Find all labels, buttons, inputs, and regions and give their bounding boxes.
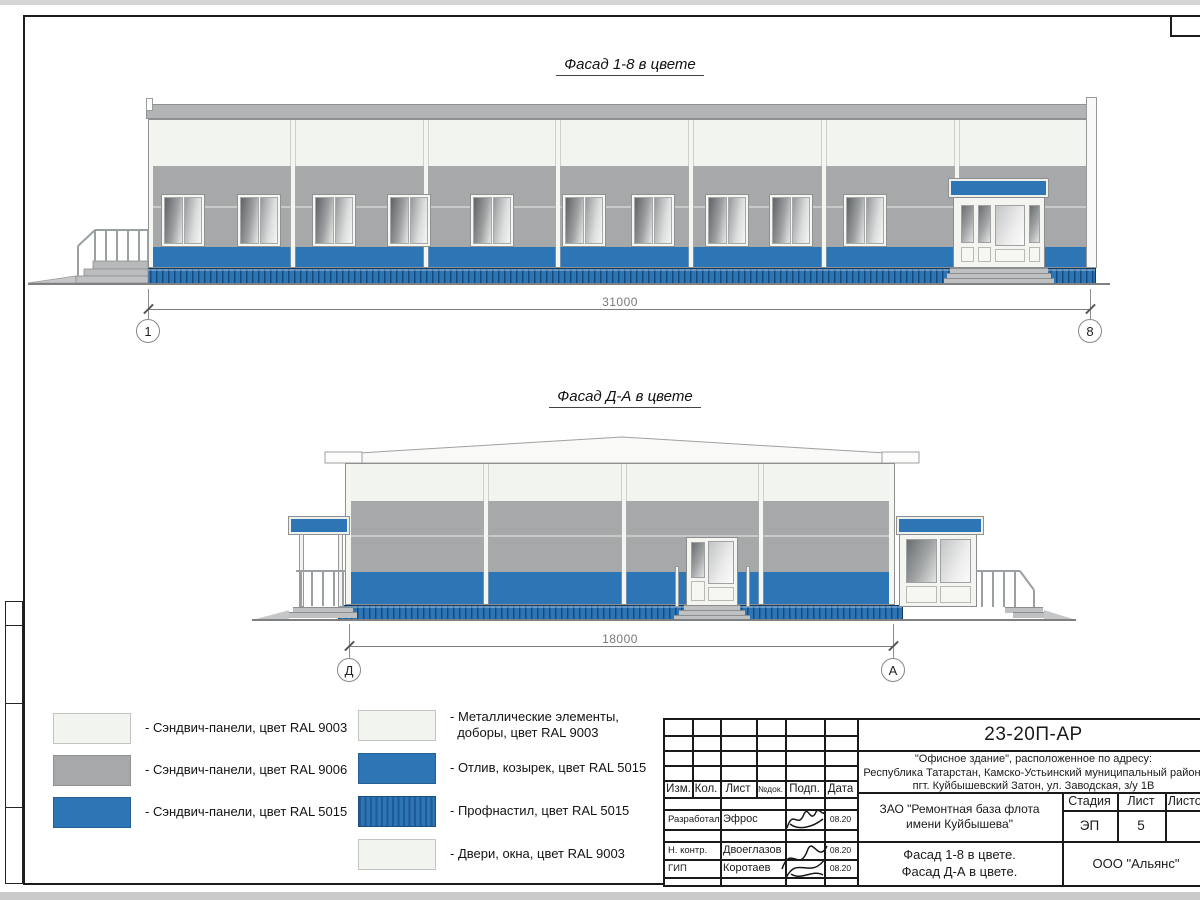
facade1-title: Фасад 1-8 в цвете (480, 56, 780, 73)
titleblock-grid-line (1117, 792, 1119, 841)
facade1-stairs-railing (28, 222, 150, 284)
facade-window (470, 194, 514, 247)
door-glass-pane (1029, 205, 1040, 243)
sheet-number: 5 (1117, 810, 1165, 841)
drawing-title-line: Фасад Д-А в цвете. (902, 863, 1018, 880)
role-cell: ГИП (668, 859, 720, 877)
porch-left-canopy (289, 517, 349, 534)
legend-swatch-ral9003 (53, 713, 131, 744)
door-kick-panel (1029, 247, 1040, 262)
legend-item: - Отлив, козырек, цвет RAL 5015 (358, 752, 646, 784)
legend-swatch-ral5015 (53, 797, 131, 828)
porch-left-railing (294, 566, 350, 608)
titleblock-header-1: Кол. (692, 780, 720, 797)
page-edge-top (0, 0, 1200, 5)
legend-label: - Сэндвич-панели, цвет RAL 9003 (145, 720, 347, 736)
frame-corner-box (1170, 15, 1200, 37)
facade-mullion (622, 464, 626, 604)
door-handrail-post (746, 566, 750, 607)
name-cell: Эфрос (723, 809, 785, 829)
window-pane-right (185, 198, 201, 243)
window-pane-left (474, 198, 491, 243)
facade-window (312, 194, 356, 247)
door-kick-panel (978, 247, 991, 262)
facade-window (631, 194, 675, 247)
margin-box-3 (5, 703, 23, 808)
titleblock-header-5: Дата (824, 780, 857, 797)
legend-label: - Сэндвич-панели, цвет RAL 5015 (145, 804, 347, 820)
door-handrail-post (675, 566, 679, 607)
facade1-blue-band (149, 247, 1089, 268)
sheet-label: Лист (1117, 792, 1165, 810)
role-cell: Н. контр. (668, 841, 720, 859)
porch-kick-panel (906, 586, 937, 603)
facade1-parapet-tick (146, 98, 153, 111)
titleblock-grid-line (665, 765, 857, 767)
legend-swatch-ral9006 (53, 755, 131, 786)
legend-item: - Сэндвич-панели, цвет RAL 9003 (53, 712, 347, 744)
titleblock-grid-line (665, 877, 857, 879)
window-pane-right (494, 198, 510, 243)
legend-swatch-ral9003 (358, 839, 436, 870)
porch-step (289, 612, 357, 618)
door-kick-panel (691, 581, 705, 601)
project-address: "Офисное здание", расположенное по адрес… (857, 751, 1200, 792)
facade-window (387, 194, 431, 247)
porch-window (906, 539, 937, 583)
window-pane-right (729, 198, 745, 243)
page-edge-bottom (0, 892, 1200, 900)
window-pane-left (241, 198, 258, 243)
facade1-ground-line (28, 283, 1110, 285)
titleblock-header-2: Лист (720, 780, 756, 797)
facade2-roof (315, 430, 965, 466)
facade2-extension-line-left (349, 624, 350, 658)
door-kick-panel (995, 249, 1025, 262)
titleblock-grid-line (1165, 792, 1167, 841)
window-pane-left (773, 198, 790, 243)
facade1-corner-pilaster (1086, 97, 1097, 268)
company-name: ООО "Альянс" (1062, 841, 1200, 885)
legend-label: - Сэндвич-панели, цвет RAL 9006 (145, 762, 347, 778)
date-cell: 08.20 (824, 859, 857, 877)
legend-column-left: - Сэндвич-панели, цвет RAL 9003- Сэндвич… (53, 712, 353, 842)
client-name: ЗАО "Ремонтная база флота имени Куйбышев… (857, 792, 1062, 841)
facade2-extension-line-right (893, 624, 894, 658)
legend-column-right: - Металлические элементы, доборы, цвет R… (358, 709, 663, 874)
legend-label: - Профнастил, цвет RAL 5015 (450, 803, 629, 819)
facade1-extension-line-right (1090, 289, 1091, 319)
facade-mullion (822, 120, 826, 267)
facade1-entrance-canopy (949, 179, 1048, 197)
legend-item: - Сэндвич-панели, цвет RAL 9006 (53, 754, 347, 786)
facade2-dimension-line (349, 646, 894, 647)
address-line: "Офисное здание", расположенное по адрес… (857, 753, 1200, 767)
porch-step (1013, 612, 1047, 618)
titleblock-grid-line (665, 750, 1200, 752)
facade-mullion (556, 120, 560, 267)
client-line: имени Куйбышева" (906, 817, 1013, 832)
window-pane-right (336, 198, 352, 243)
window-pane-right (586, 198, 602, 243)
legend-label: - Отлив, козырек, цвет RAL 5015 (450, 760, 646, 776)
facade2-dimension-text: 18000 (560, 632, 680, 646)
legend-item: - Сэндвич-панели, цвет RAL 5015 (53, 796, 347, 828)
margin-box-1 (5, 601, 23, 626)
facade2-title: Фасад Д-А в цвете (470, 388, 780, 405)
facade-mullion (759, 464, 763, 604)
axis-bubble-a: А (881, 658, 905, 682)
facade-window (562, 194, 606, 247)
door-glass-pane (978, 205, 991, 243)
porch-right-glazing (899, 534, 977, 607)
window-pane-left (391, 198, 408, 243)
titleblock-grid-line (857, 720, 859, 885)
window-pane-right (411, 198, 427, 243)
legend-label: - Двери, окна, цвет RAL 9003 (450, 846, 625, 862)
facade-window (237, 194, 281, 247)
facade2-blue-band (346, 572, 894, 605)
porch-window (940, 539, 971, 583)
sheets-label: Листов (1165, 792, 1200, 810)
margin-box-4 (5, 807, 23, 884)
window-pane-right (867, 198, 883, 243)
door-glass-pane (691, 542, 705, 578)
margin-box-2 (5, 625, 23, 704)
titleblock-header-0: Изм. (665, 780, 692, 797)
stage-label: Стадия (1062, 792, 1117, 810)
facade-window (705, 194, 749, 247)
facade1-dimension-text: 31000 (560, 295, 680, 309)
drawing-title: Фасад 1-8 в цвете. Фасад Д-А в цвете. (857, 841, 1062, 885)
legend-swatch-ral9003 (358, 710, 436, 741)
titleblock-grid-line (857, 792, 1200, 794)
window-pane-left (165, 198, 182, 243)
door-glass-pane (708, 541, 734, 584)
porch-kick-panel (940, 586, 971, 603)
porch-right-railing (976, 566, 1040, 608)
facade2-right-trim (889, 464, 894, 604)
stage-value: ЭП (1062, 810, 1117, 841)
name-cell: Двоеглазов (723, 841, 785, 859)
facade1-panel-seam (149, 206, 1089, 208)
facade2-ground-line (252, 619, 1076, 621)
axis-bubble-1: 1 (136, 319, 160, 343)
window-pane-left (709, 198, 726, 243)
legend-item: - Металлические элементы, доборы, цвет R… (358, 709, 619, 741)
facade-window (161, 194, 205, 247)
window-pane-left (635, 198, 652, 243)
facade-mullion (291, 120, 295, 267)
date-cell: 08.20 (824, 809, 857, 829)
legend-label: - Металлические элементы, доборы, цвет R… (450, 709, 619, 741)
axis-bubble-d: Д (337, 658, 361, 682)
drawing-title-line: Фасад 1-8 в цвете. (903, 846, 1016, 863)
facade-mullion (689, 120, 693, 267)
window-pane-left (316, 198, 333, 243)
window-pane-left (566, 198, 583, 243)
axis-bubble-8: 8 (1078, 319, 1102, 343)
facade1-entrance-door (953, 197, 1045, 268)
legend-item: - Двери, окна, цвет RAL 9003 (358, 838, 625, 870)
facade2-door (686, 537, 738, 607)
legend-item: - Профнастил, цвет RAL 5015 (358, 795, 629, 827)
title-block: 23-20П-АР "Офисное здание", расположенно… (663, 718, 1200, 887)
client-line: ЗАО "Ремонтная база флота (879, 802, 1039, 817)
facade2-panel-seam (346, 535, 894, 537)
facade-mullion (484, 464, 488, 604)
titleblock-grid-line (665, 735, 857, 737)
door-glass-pane (995, 205, 1025, 246)
window-pane-left (847, 198, 864, 243)
door-kick-panel (961, 247, 974, 262)
titleblock-grid-line (1062, 792, 1064, 885)
facade-window (769, 194, 813, 247)
titleblock-grid-line (665, 829, 857, 831)
date-cell: 08.20 (824, 841, 857, 859)
name-cell: Коротаев (723, 859, 785, 877)
window-pane-right (793, 198, 809, 243)
titleblock-grid-line (665, 797, 857, 799)
address-line: Республика Татарстан, Камско-Устьинский … (857, 767, 1200, 781)
legend-swatch-ral5015 (358, 753, 436, 784)
door-kick-panel (708, 587, 734, 601)
titleblock-header-4: Подп. (785, 780, 824, 797)
facade1-roof-band (146, 104, 1096, 119)
facade2-profiled-base (338, 605, 903, 620)
facade2-wall (345, 463, 895, 605)
porch-right-canopy (897, 517, 983, 534)
window-pane-right (655, 198, 671, 243)
doc-number: 23-20П-АР (857, 720, 1200, 750)
facade1-extension-line-left (148, 289, 149, 319)
titleblock-header-3: №док. (756, 780, 785, 797)
legend-swatch-ral5015_striped (358, 796, 436, 827)
window-pane-right (261, 198, 277, 243)
titleblock-grid-line (1062, 810, 1200, 812)
drawing-sheet: Фасад 1-8 в цвете 3 (0, 0, 1200, 900)
door-glass-pane (961, 205, 974, 243)
facade1-dimension-line (148, 309, 1091, 310)
facade-window (843, 194, 887, 247)
role-cell: Разработал (668, 809, 720, 829)
